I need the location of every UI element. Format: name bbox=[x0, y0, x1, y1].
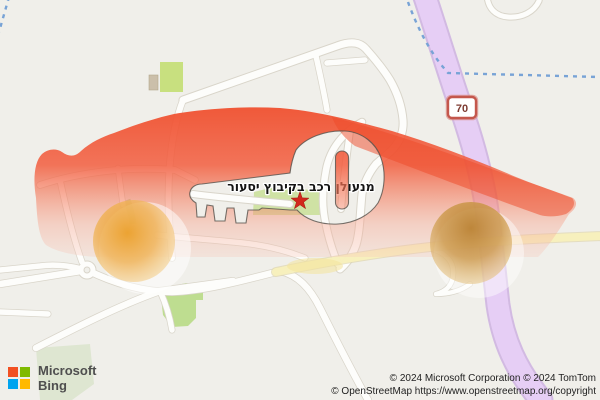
right-wheel bbox=[430, 202, 512, 284]
logo-square-red bbox=[8, 367, 18, 377]
attribution-line-2[interactable]: © OpenStreetMap https://www.openstreetma… bbox=[331, 385, 596, 398]
map-canvas[interactable]: 70 מנעולן רכב בקיבוץ יסעור bbox=[0, 0, 600, 400]
microsoft-logo-icon bbox=[8, 367, 30, 389]
logo-square-yellow bbox=[20, 379, 30, 389]
route-70-shield: 70 bbox=[447, 96, 478, 120]
place-label: מנעולן רכב בקיבוץ יסעור bbox=[227, 179, 374, 194]
building-footprint bbox=[149, 75, 158, 90]
logo-square-green bbox=[20, 367, 30, 377]
route-70-shield-label: 70 bbox=[456, 103, 468, 115]
microsoft-bing-logo[interactable]: Microsoft Bing bbox=[8, 363, 97, 393]
attribution-line-1: © 2024 Microsoft Corporation © 2024 TomT… bbox=[331, 372, 596, 385]
map-attribution: © 2024 Microsoft Corporation © 2024 TomT… bbox=[331, 372, 596, 398]
brand-microsoft: Microsoft bbox=[38, 363, 97, 378]
brand-bing: Bing bbox=[38, 378, 97, 393]
logo-square-blue bbox=[8, 379, 18, 389]
left-wheel bbox=[93, 200, 175, 282]
map-drawing: 70 מנעולן רכב בקיבוץ יסעור bbox=[0, 0, 600, 400]
